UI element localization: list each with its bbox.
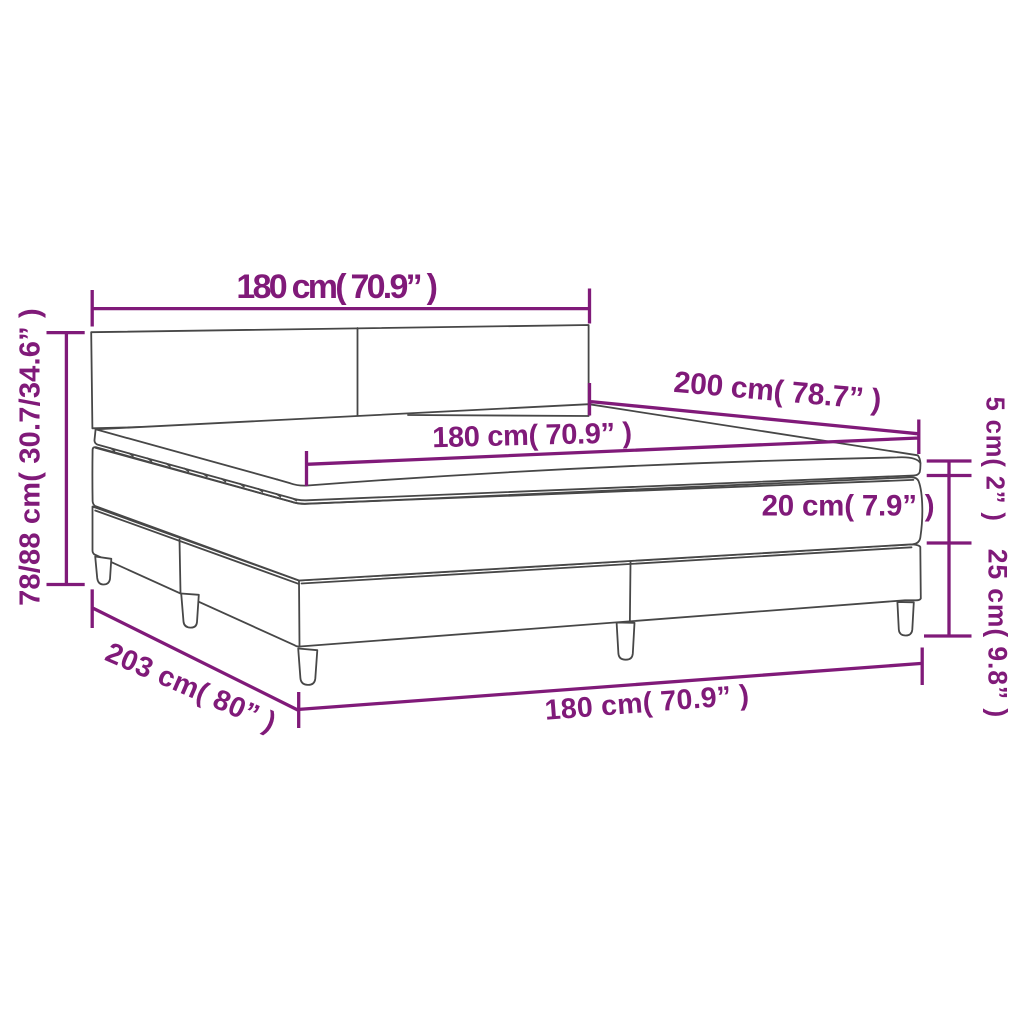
svg-text:180 cm( 70.9” ): 180 cm( 70.9” ) — [236, 268, 436, 306]
svg-text:5 cm( 2” ): 5 cm( 2” ) — [981, 397, 1009, 522]
svg-text:78/88 cm( 30.7/34.6” ): 78/88 cm( 30.7/34.6” ) — [15, 308, 47, 606]
svg-text:180 cm( 70.9” ): 180 cm( 70.9” ) — [432, 417, 632, 454]
svg-text:25 cm( 9.8” ): 25 cm( 9.8” ) — [983, 549, 1013, 718]
svg-text:20 cm( 7.9” ): 20 cm( 7.9” ) — [762, 490, 935, 523]
